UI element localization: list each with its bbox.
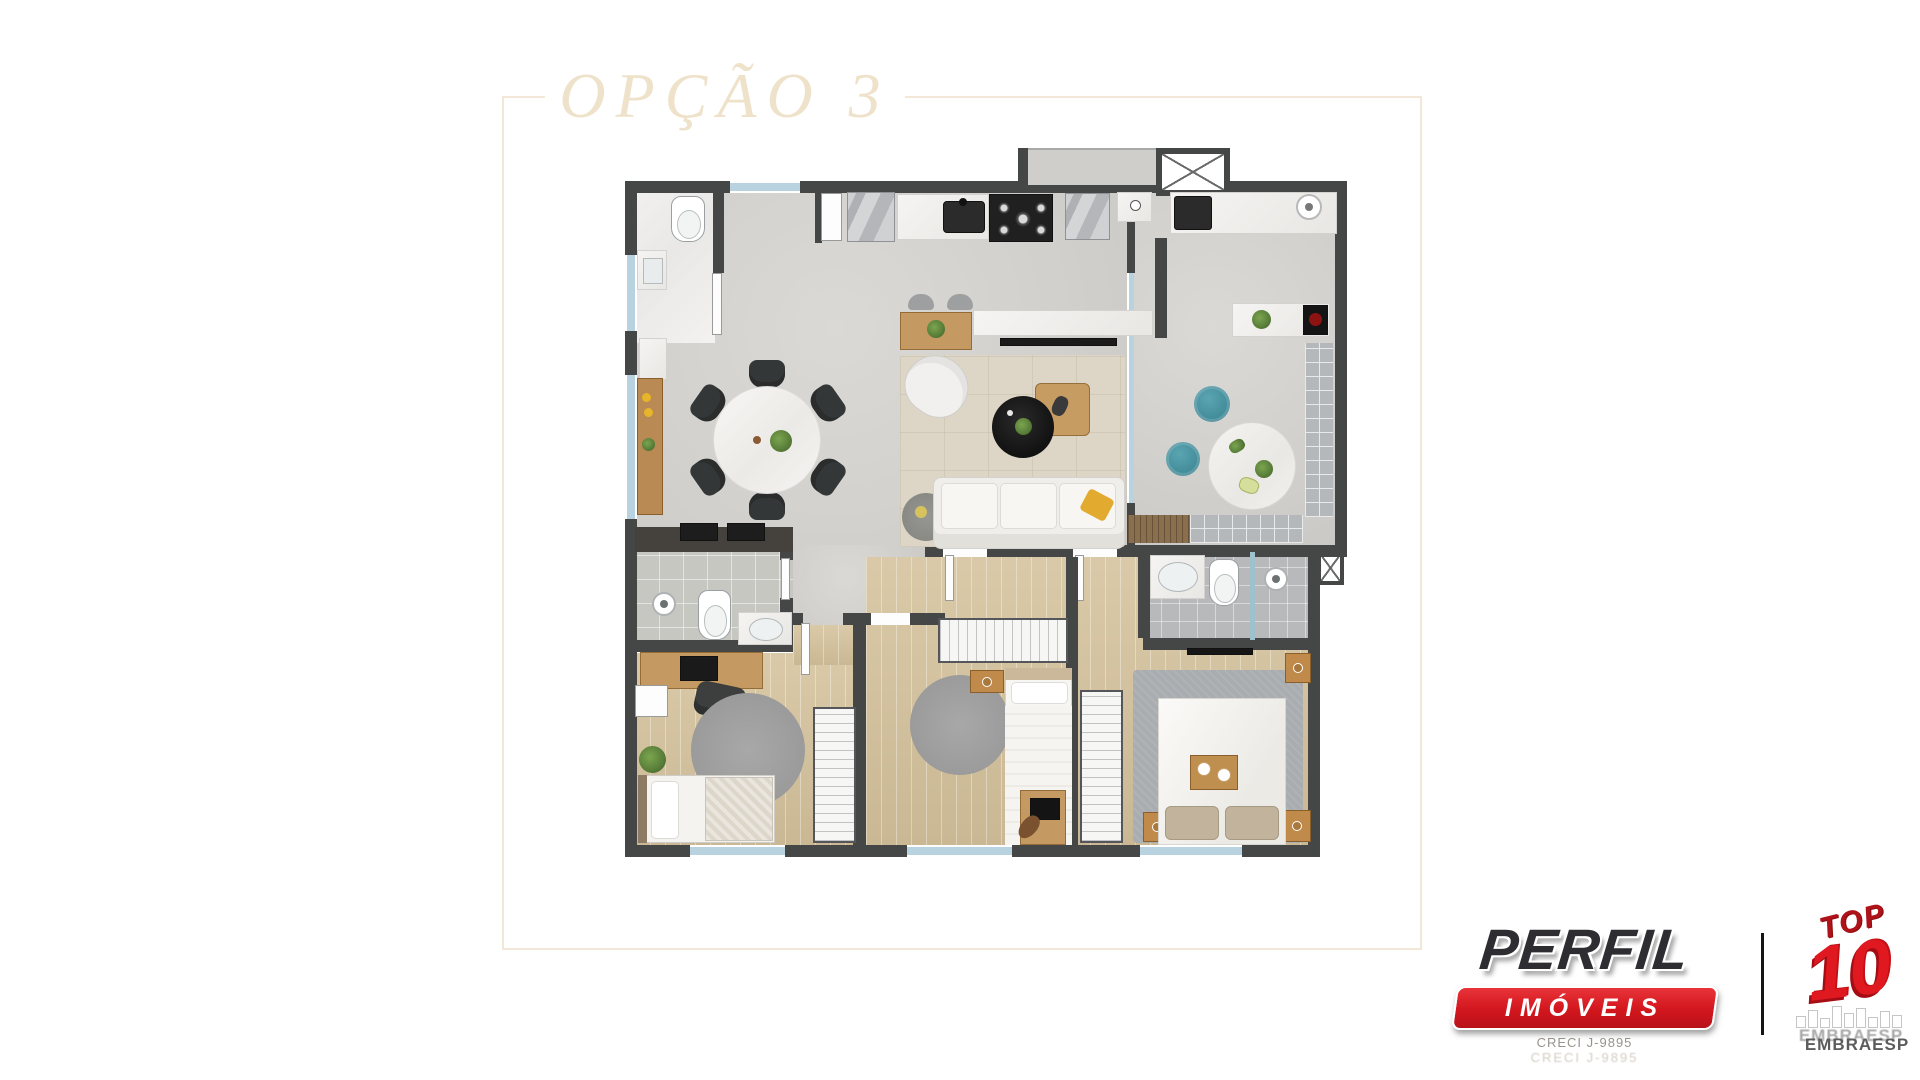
plant-icon (1015, 418, 1032, 435)
door-icon (945, 555, 954, 601)
faucet-icon (959, 198, 967, 206)
drain-icon (1305, 203, 1313, 211)
wardrobe-icon (1080, 690, 1123, 843)
breakfast-bar-icon (973, 310, 1153, 336)
tv-icon (1187, 648, 1253, 655)
decor-icon (915, 506, 927, 518)
door-icon (781, 558, 790, 600)
console-decor (680, 523, 718, 541)
imoveis-text: IMÓVEIS (1456, 988, 1714, 1028)
shower-head-icon (1272, 575, 1280, 583)
door-icon (712, 273, 722, 335)
shelf-icon (635, 685, 668, 717)
perfil-logo: PERFIL IMÓVEIS CRECI J-9895 CRECI J-9895 (1442, 914, 1727, 1065)
nightstand-icon (1285, 653, 1311, 683)
pillow-icon (1011, 682, 1068, 704)
fridge-icon (1065, 193, 1110, 240)
wall (1335, 181, 1347, 557)
door-icon (821, 193, 842, 241)
toilet-icon (671, 196, 705, 242)
embraesp-text-main: EMBRAESP (1796, 1035, 1918, 1055)
headboard (1005, 668, 1072, 680)
decor-icon (753, 436, 761, 444)
dining-table-icon (713, 386, 821, 494)
plant-icon (1252, 310, 1271, 329)
window-icon (730, 181, 800, 193)
round-table-icon (1208, 422, 1296, 510)
city-skyline-icon (1788, 1004, 1910, 1028)
fruit-bowl-icon (642, 393, 651, 402)
plant-icon (770, 430, 792, 452)
sink-basin (749, 618, 783, 641)
sofa-cushion (941, 483, 998, 529)
pillow-icon (651, 781, 679, 839)
console-decor (727, 523, 765, 541)
terrace-tile-border (1190, 515, 1303, 543)
laptop-icon (680, 656, 718, 681)
plant-icon (1255, 460, 1273, 478)
door-icon (801, 623, 810, 675)
shower-glass (1250, 552, 1255, 640)
floor-plan-page: OPÇÃO 3 (0, 0, 1920, 1080)
wall (1018, 148, 1028, 193)
top10-embraesp-badge: TOP 10 EMBRAESP EMBRAESP (1788, 906, 1910, 1060)
wall (1138, 552, 1150, 638)
nightstand-icon (1283, 810, 1311, 842)
pillow-icon (1225, 806, 1279, 840)
service-recess (1018, 148, 1156, 185)
induction-burner (1309, 313, 1322, 326)
headboard (638, 775, 647, 843)
wardrobe-icon (813, 707, 856, 843)
dining-chair-icon (749, 492, 785, 520)
window-icon (690, 845, 785, 857)
gas-cooktop-icon (989, 194, 1053, 242)
stool-icon (908, 294, 934, 310)
stool-icon (947, 294, 973, 310)
fruit-bowl-icon (644, 408, 653, 417)
wall (713, 193, 724, 273)
toilet-icon (698, 590, 731, 640)
imoveis-banner: IMÓVEIS (1450, 986, 1718, 1030)
shower-head-icon (660, 600, 668, 608)
decor-icon (1007, 410, 1013, 416)
cabinet-icon (639, 338, 667, 380)
plant-icon (927, 320, 945, 338)
sliding-glass-door-icon (1127, 273, 1134, 503)
sink-basin (1158, 562, 1198, 592)
wall (1155, 238, 1167, 338)
pouf-icon (1166, 442, 1200, 476)
deck-mat-icon (1128, 515, 1190, 543)
top10-ten-text: 10 (1785, 933, 1914, 1009)
terrace-tile-border (1305, 343, 1333, 517)
window-icon (625, 255, 637, 331)
tray-plate (1197, 762, 1211, 776)
blanket (705, 777, 773, 841)
pouf-icon (1194, 386, 1230, 422)
toilet-icon (1209, 559, 1239, 606)
window-icon (907, 845, 1012, 857)
door-icon (871, 613, 910, 625)
sofa-cushion (1000, 483, 1057, 529)
tray-plate (1217, 768, 1231, 782)
faucet-icon (1130, 200, 1141, 211)
page-title: OPÇÃO 3 (545, 56, 905, 136)
nightstand-icon (970, 670, 1004, 693)
tv-icon (1000, 338, 1117, 346)
washer-icon (1174, 196, 1212, 230)
apartment-floor-plan (625, 138, 1347, 858)
sink-basin (643, 258, 663, 284)
ventilation-shaft-icon (1156, 148, 1230, 196)
dining-chair-icon (749, 360, 785, 388)
plant-icon (639, 746, 666, 773)
perfil-brand-text: PERFIL (1438, 914, 1731, 986)
plant-icon (642, 438, 655, 451)
window-icon (625, 375, 637, 519)
kitchen-cabinet-icon (847, 192, 895, 242)
logo-divider (1761, 933, 1764, 1035)
creci-license-ghost: CRECI J-9895 (1442, 1050, 1727, 1065)
wardrobe-icon (938, 618, 1068, 663)
embraesp-text: EMBRAESP EMBRAESP (1788, 1026, 1910, 1060)
creci-license: CRECI J-9895 (1442, 1035, 1727, 1050)
window-icon (1140, 845, 1242, 857)
pillow-icon (1165, 806, 1219, 840)
